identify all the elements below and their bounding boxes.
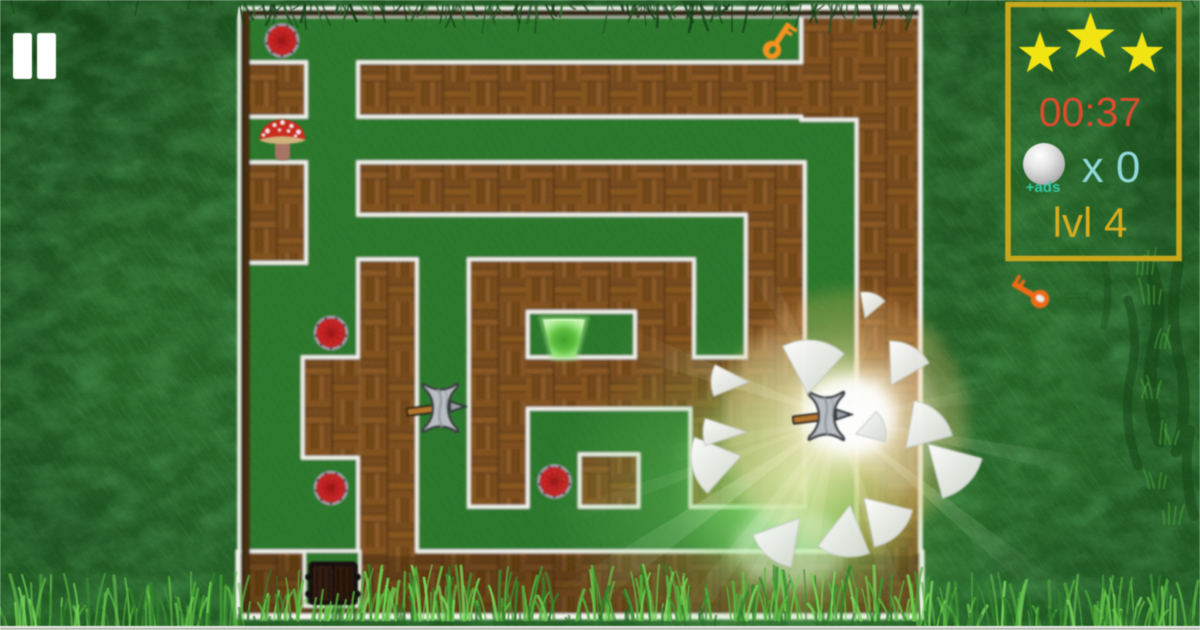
svg-text:x 0: x 0 [1082, 143, 1141, 192]
svg-text:00:37: 00:37 [1039, 89, 1142, 135]
svg-text:lvl 4: lvl 4 [1053, 199, 1128, 246]
svg-text:+ads: +ads [1026, 179, 1061, 196]
